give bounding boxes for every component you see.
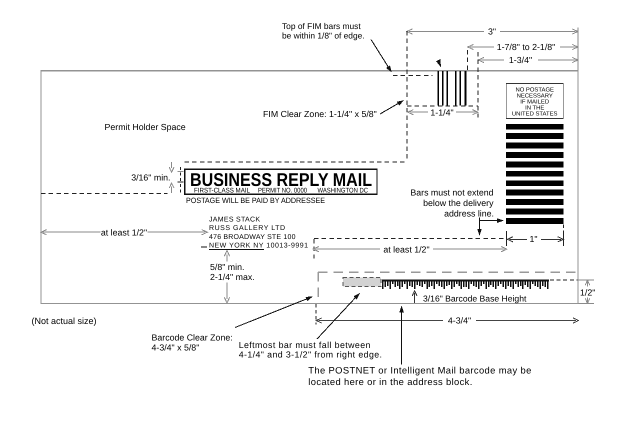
svg-text:2-1/4" max.: 2-1/4" max.	[210, 272, 255, 282]
svg-text:located here or in the address: located here or in the address block.	[308, 376, 472, 387]
svg-text:be within 1/8" of edge.: be within 1/8" of edge.	[282, 31, 365, 41]
svg-text:UNITED STATES: UNITED STATES	[512, 111, 558, 118]
svg-text:address line.: address line.	[444, 209, 494, 219]
svg-text:at least 1/2": at least 1/2"	[101, 227, 147, 237]
svg-text:5/8" min.: 5/8" min.	[210, 262, 244, 272]
svg-text:The POSTNET or Intelligent Mai: The POSTNET or Intelligent Mail barcode …	[308, 364, 531, 375]
svg-text:IF MAILED: IF MAILED	[520, 99, 549, 106]
svg-text:PERMIT NO. 0000: PERMIT NO. 0000	[258, 187, 307, 194]
svg-text:below the delivery: below the delivery	[423, 198, 494, 208]
svg-text:IN THE: IN THE	[525, 105, 544, 112]
svg-text:3/16" Barcode Base Height: 3/16" Barcode Base Height	[423, 294, 527, 304]
svg-text:NECESSARY: NECESSARY	[517, 93, 553, 100]
svg-text:(Not actual size): (Not actual size)	[32, 316, 97, 326]
svg-text:1-3/4": 1-3/4"	[509, 55, 532, 65]
svg-text:3": 3"	[488, 27, 496, 37]
svg-text:476 BROADWAY STE 100: 476 BROADWAY STE 100	[209, 234, 296, 241]
svg-text:Permit Holder Space: Permit Holder Space	[105, 122, 186, 132]
svg-text:JAMES STACK: JAMES STACK	[209, 216, 260, 223]
svg-text:FIRST-CLASS MAIL: FIRST-CLASS MAIL	[194, 187, 250, 194]
svg-text:at least 1/2": at least 1/2"	[383, 245, 429, 255]
svg-text:4-1/4" and 3-1/2" from right e: 4-1/4" and 3-1/2" from right edge.	[239, 349, 382, 359]
svg-text:RUSS GALLERY LTD: RUSS GALLERY LTD	[209, 225, 285, 232]
svg-text:Barcode Clear Zone:: Barcode Clear Zone:	[152, 332, 233, 342]
svg-text:WASHINGTON DC: WASHINGTON DC	[318, 187, 369, 194]
svg-text:1": 1"	[529, 234, 537, 244]
svg-text:1/2": 1/2"	[580, 287, 595, 297]
svg-text:4-3/4": 4-3/4"	[448, 315, 471, 325]
svg-text:NO POSTAGE: NO POSTAGE	[515, 87, 554, 94]
svg-text:1-1/4": 1-1/4"	[430, 107, 453, 117]
svg-text:1-7/8" to 2-1/8": 1-7/8" to 2-1/8"	[497, 42, 556, 52]
svg-text:3/16" min.: 3/16" min.	[131, 172, 170, 182]
svg-text:NEW YORK NY 10013-9991: NEW YORK NY 10013-9991	[209, 243, 308, 250]
svg-text:Bars must not extend: Bars must not extend	[410, 188, 493, 198]
svg-text:4-3/4" x 5/8": 4-3/4" x 5/8"	[152, 343, 200, 353]
svg-text:FIM Clear Zone: 1-1/4" x 5/8": FIM Clear Zone: 1-1/4" x 5/8"	[263, 109, 377, 119]
svg-text:POSTAGE WILL BE PAID BY ADDRES: POSTAGE WILL BE PAID BY ADDRESSEE	[186, 196, 325, 205]
svg-text:Top of FIM bars must: Top of FIM bars must	[282, 21, 361, 31]
